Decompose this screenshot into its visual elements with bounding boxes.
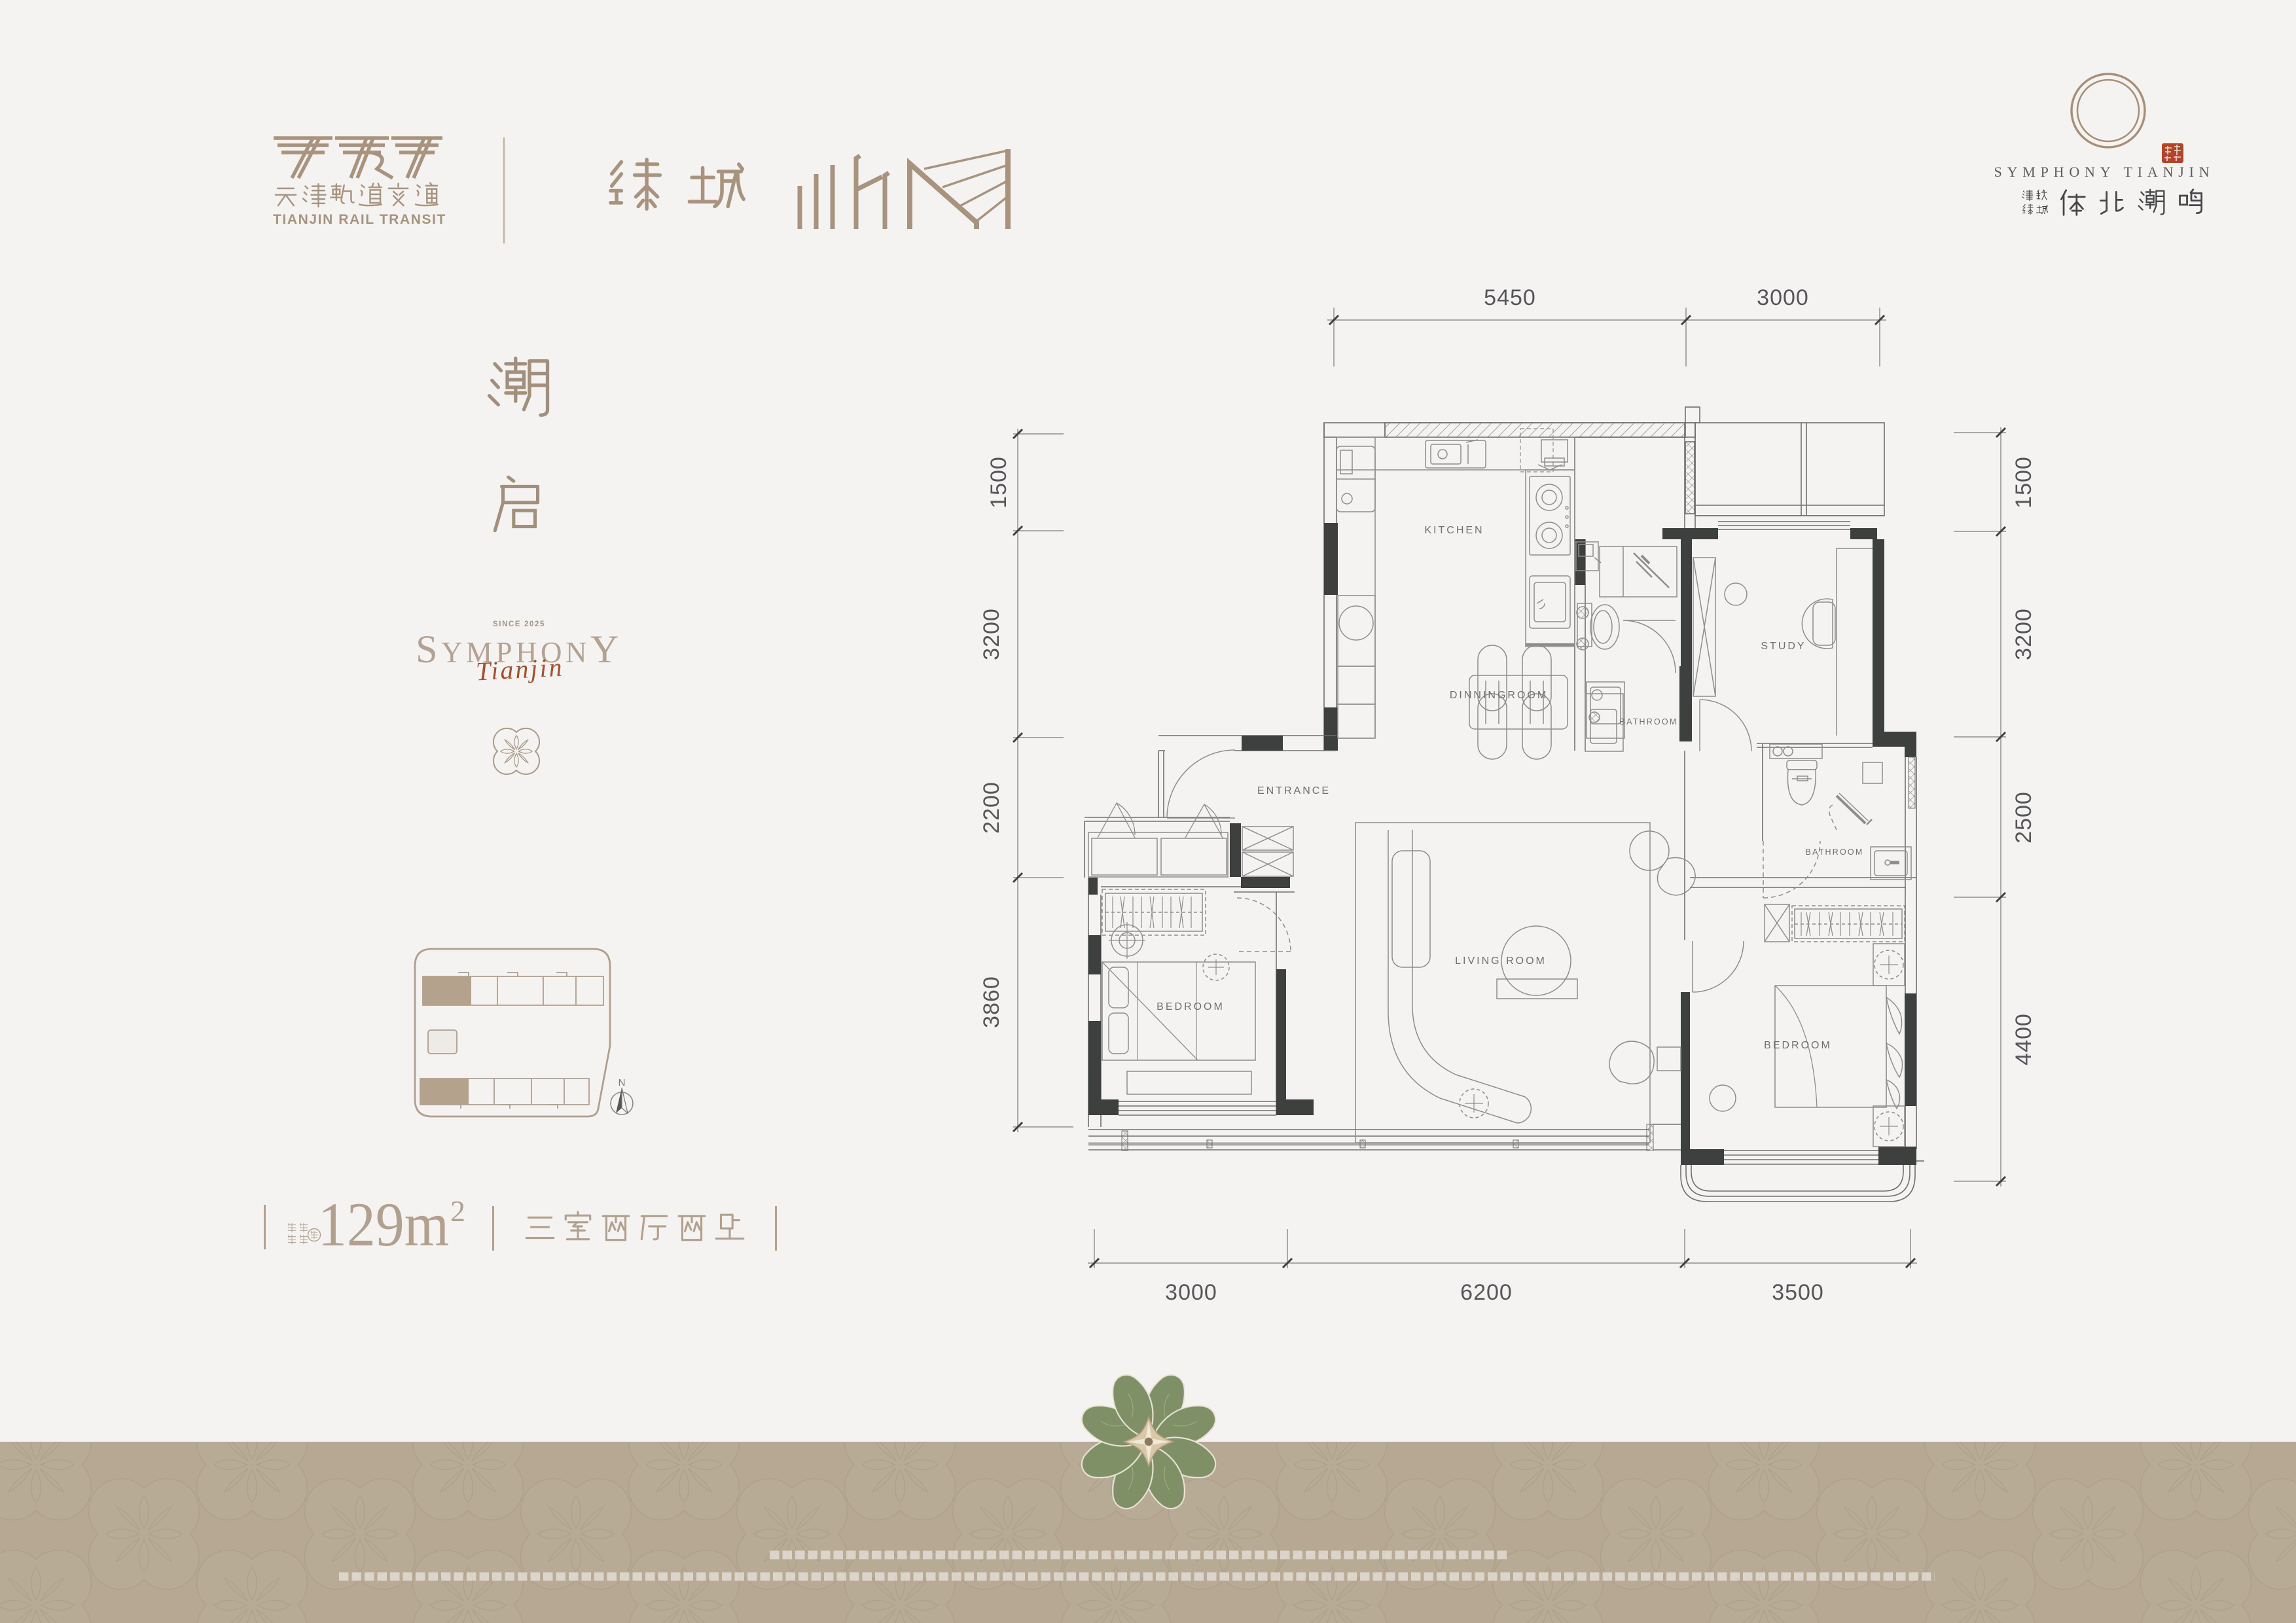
svg-text:BATHROOM: BATHROOM [1806, 847, 1864, 857]
svg-text:LIVING ROOM: LIVING ROOM [1455, 955, 1547, 967]
svg-text:6200: 6200 [1460, 1280, 1513, 1305]
svg-text:DINNINGROOM: DINNINGROOM [1450, 690, 1548, 701]
svg-text:2: 2 [450, 1194, 465, 1228]
svg-text:BEDROOM: BEDROOM [1157, 1001, 1225, 1012]
svg-text:KITCHEN: KITCHEN [1424, 525, 1484, 536]
svg-text:Tianjin: Tianjin [475, 652, 565, 687]
svg-text:129m: 129m [318, 1190, 449, 1259]
svg-text:1500: 1500 [2011, 456, 2036, 508]
svg-text:1500: 1500 [986, 456, 1011, 508]
svg-text:3000: 3000 [1757, 285, 1809, 310]
svg-text:BEDROOM: BEDROOM [1764, 1040, 1832, 1051]
svg-text:SINCE 2025: SINCE 2025 [493, 620, 545, 628]
svg-text:3000: 3000 [1165, 1280, 1217, 1305]
svg-text:N: N [619, 1077, 626, 1088]
svg-text:3200: 3200 [2011, 608, 2036, 660]
svg-text:SYMPHONY TIANJIN: SYMPHONY TIANJIN [1994, 164, 2215, 180]
svg-text:4400: 4400 [2011, 1013, 2036, 1065]
svg-text:3500: 3500 [1772, 1280, 1824, 1305]
svg-text:2500: 2500 [2011, 791, 2036, 844]
svg-text:3200: 3200 [979, 608, 1004, 660]
svg-text:3860: 3860 [979, 976, 1004, 1028]
svg-text:BATHROOM: BATHROOM [1620, 717, 1678, 726]
svg-text:2200: 2200 [979, 781, 1004, 834]
svg-text:STUDY: STUDY [1761, 641, 1806, 652]
svg-text:ENTRANCE: ENTRANCE [1257, 785, 1331, 796]
svg-text:5450: 5450 [1484, 285, 1536, 310]
svg-text:TIANJIN RAIL TRANSIT: TIANJIN RAIL TRANSIT [273, 212, 446, 227]
